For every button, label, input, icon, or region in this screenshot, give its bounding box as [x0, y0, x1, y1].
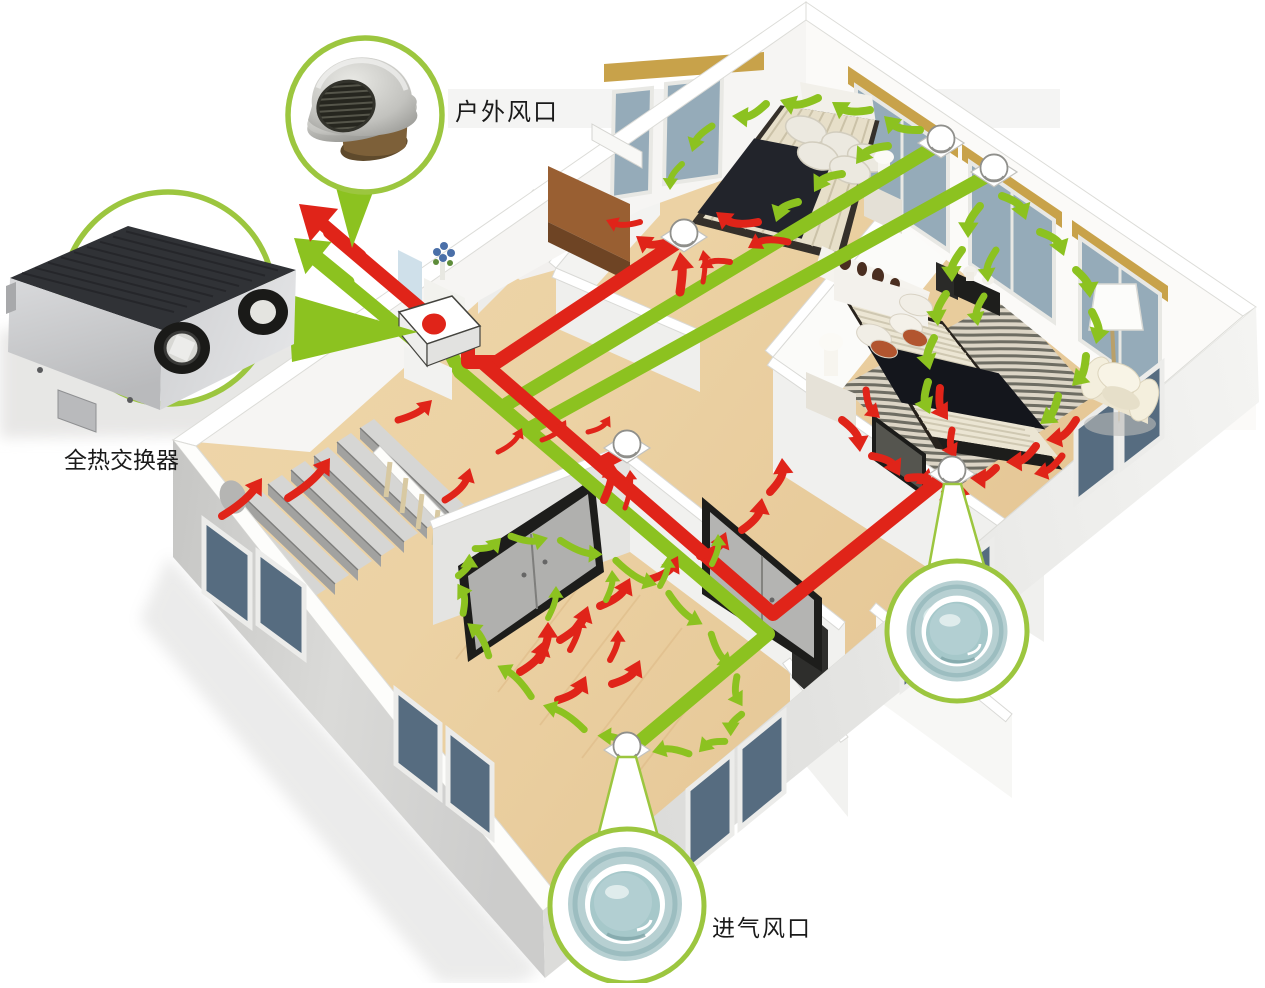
svg-text:全热交换器: 全热交换器 [64, 447, 179, 473]
svg-text:进气风口: 进气风口 [712, 915, 812, 941]
svg-text:户外风口: 户外风口 [455, 99, 559, 126]
